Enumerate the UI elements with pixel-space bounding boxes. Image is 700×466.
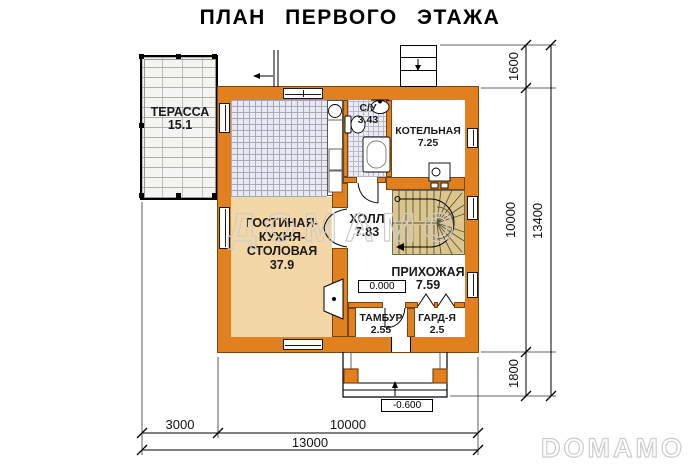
vent-arrow (253, 50, 278, 87)
level-marker-ground: 0.000 (358, 280, 406, 293)
window-boiler-right (467, 128, 478, 148)
wall-vestibule-top-3 (434, 302, 438, 308)
wall-living-hall-upper (332, 183, 348, 208)
watermark-corner: DOMAMO (541, 433, 685, 464)
dim-right-1800: 1800 (506, 352, 521, 396)
wall-boiler-stairs (386, 177, 465, 190)
wall-vestibule-top-4 (454, 302, 465, 308)
window-kitchen-top (283, 88, 323, 99)
porch-linework (343, 352, 447, 397)
terrace-area: 15.1 (142, 119, 218, 132)
door-opening-bathroom (357, 177, 377, 183)
dim-right-1600: 1600 (506, 45, 521, 88)
dim-bottom-10000: 10000 (218, 417, 478, 432)
dim-right-10000: 10000 (503, 88, 518, 352)
dim-right-total-13400: 13400 (530, 45, 545, 396)
wall-bathroom-bottom-right (377, 177, 386, 183)
wardrobe-label: ГАРД-Я 2.5 (412, 313, 462, 336)
terrace-label: ТЕРАССА 15.1 (142, 106, 218, 132)
page-title: ПЛАН ПЕРВОГО ЭТАЖА (0, 6, 700, 30)
door-opening-vestibule (383, 302, 405, 308)
dim-bottom-total-13000: 13000 (142, 435, 478, 450)
window-kitchen-terrace (219, 103, 230, 133)
boiler-name: КОТЕЛЬНАЯ (390, 126, 466, 138)
terrace-post (176, 193, 181, 198)
wardrobe-area: 2.5 (412, 325, 462, 337)
wall-living-hall-lower (332, 248, 348, 337)
terrace-post (139, 193, 144, 198)
level-marker-porch: -0.600 (381, 399, 433, 412)
terrace-post (139, 54, 144, 59)
boiler-area: 7.25 (390, 138, 466, 150)
bathroom-label: С/У 3.43 (350, 103, 386, 126)
boiler-label: КОТЕЛЬНАЯ 7.25 (390, 126, 466, 149)
vestibule-area: 2.55 (354, 325, 408, 337)
terrace-post (212, 193, 217, 198)
bathroom-name: С/У (350, 103, 386, 115)
wall-kitchen-bathroom (343, 100, 348, 177)
watermark-center: ДОМАМО (228, 206, 462, 251)
vestibule-label: ТАМБУР 2.55 (354, 313, 408, 336)
bathroom-area: 3.43 (350, 115, 386, 127)
wardrobe-name: ГАРД-Я (412, 313, 462, 325)
window-entry-right (467, 272, 478, 298)
window-stairs-right (467, 196, 478, 220)
vent-shaft-block (400, 45, 437, 87)
dim-bottom-3000: 3000 (142, 417, 218, 432)
living-area: 37.9 (232, 258, 332, 272)
terrace-post (212, 54, 217, 59)
kitchen-tile-floor (231, 100, 327, 197)
entrance-door-opening (391, 337, 411, 352)
terrace-post (176, 54, 181, 59)
kitchen-counter (327, 100, 343, 196)
floor-plan-canvas: ПЛАН ПЕРВОГО ЭТАЖА (0, 0, 700, 466)
window-living-bottom (283, 339, 323, 350)
vestibule-name: ТАМБУР (354, 313, 408, 325)
vent-shaft-line (401, 70, 436, 71)
vent-shaft-line (401, 57, 436, 58)
